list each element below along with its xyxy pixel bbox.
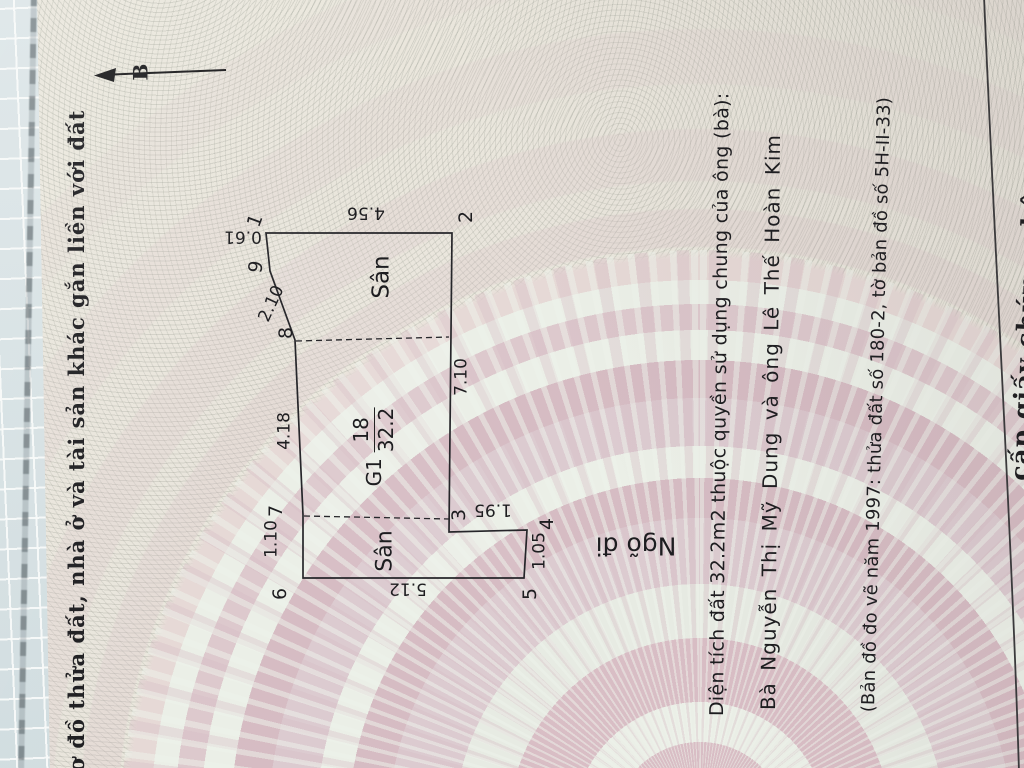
vertex-label-7: 7 (265, 505, 289, 517)
parcel-number: 18 (351, 417, 372, 442)
north-arrow-label: B (129, 64, 154, 81)
house-code-label: G1 (362, 458, 387, 486)
dimension-4-18: 4.18 (274, 412, 295, 450)
vertex-label-8: 8 (275, 327, 299, 339)
vertex-label-4: 4 (536, 518, 560, 530)
dimension-1-10: 1.10 (261, 520, 282, 558)
photo-of-land-certificate: B ơ đồ thửa đất, nhà ở và tài sản khác g… (0, 0, 1024, 768)
parcel-area: 32.2 (376, 408, 397, 453)
parcel-id-block: G1 18 32.2 (351, 408, 397, 487)
certificate-page: B ơ đồ thửa đất, nhà ở và tài sản khác g… (0, 0, 1024, 768)
section-heading: ơ đồ thửa đất, nhà ở và tài sản khác gắn… (64, 110, 90, 768)
vertex-label-5: 5 (519, 588, 543, 600)
dimension-1-05: 1.05 (529, 532, 550, 570)
dimension-7-10: 7.10 (451, 358, 472, 396)
vertex-label-3: 3 (448, 509, 472, 521)
dimension-0-61: 0.61 (224, 225, 262, 246)
yard-label-lower: Sân (371, 530, 399, 571)
vertex-label-2: 2 (455, 211, 479, 223)
north-arrow (94, 68, 226, 82)
alley-label: Ngõ đi (596, 530, 677, 561)
yard-label-upper: Sân (368, 255, 397, 298)
note-owner-names: Bà Nguyễn Thị Mỹ Dung và ông Lê Thế Hoàn… (756, 134, 786, 710)
vertex-label-6: 6 (269, 588, 293, 600)
plot-boundary (266, 233, 527, 578)
dimension-4-56: 4.56 (347, 201, 385, 222)
dimension-5-12: 5.12 (389, 577, 427, 598)
dimension-1-95: 1.95 (474, 498, 512, 519)
parcel-number-area-fraction: 18 32.2 (351, 408, 397, 453)
